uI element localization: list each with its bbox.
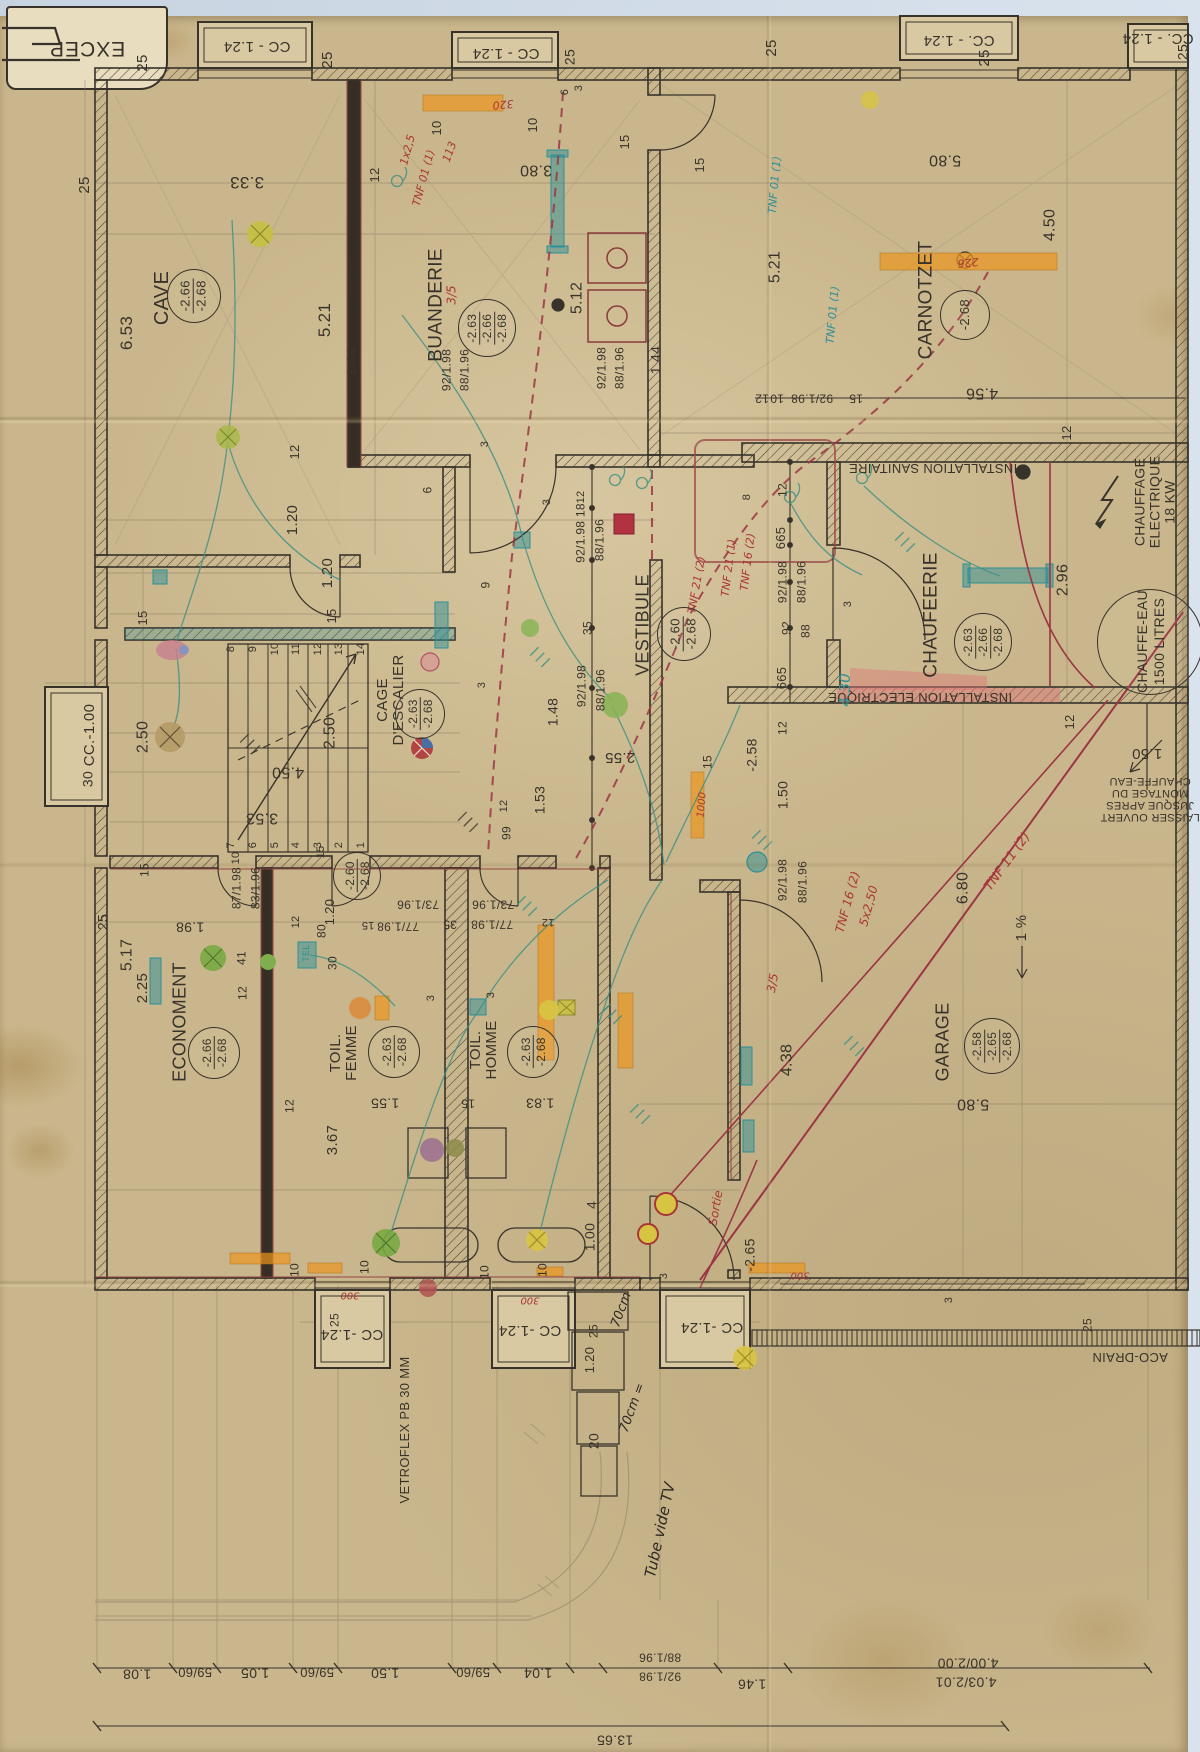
- floorplan-drawing: [0, 0, 1200, 1752]
- hash-ticks: [517, 532, 915, 1124]
- staircase: [228, 644, 368, 852]
- scanned-floorplan-page: { "colors":{"paper":"#c9b68c","ink":"#38…: [0, 0, 1200, 1752]
- ink-hashes: [240, 734, 478, 832]
- dimension-lines: [93, 398, 1185, 1731]
- walls: [95, 68, 1188, 1290]
- pencil-lines: [45, 80, 1185, 1668]
